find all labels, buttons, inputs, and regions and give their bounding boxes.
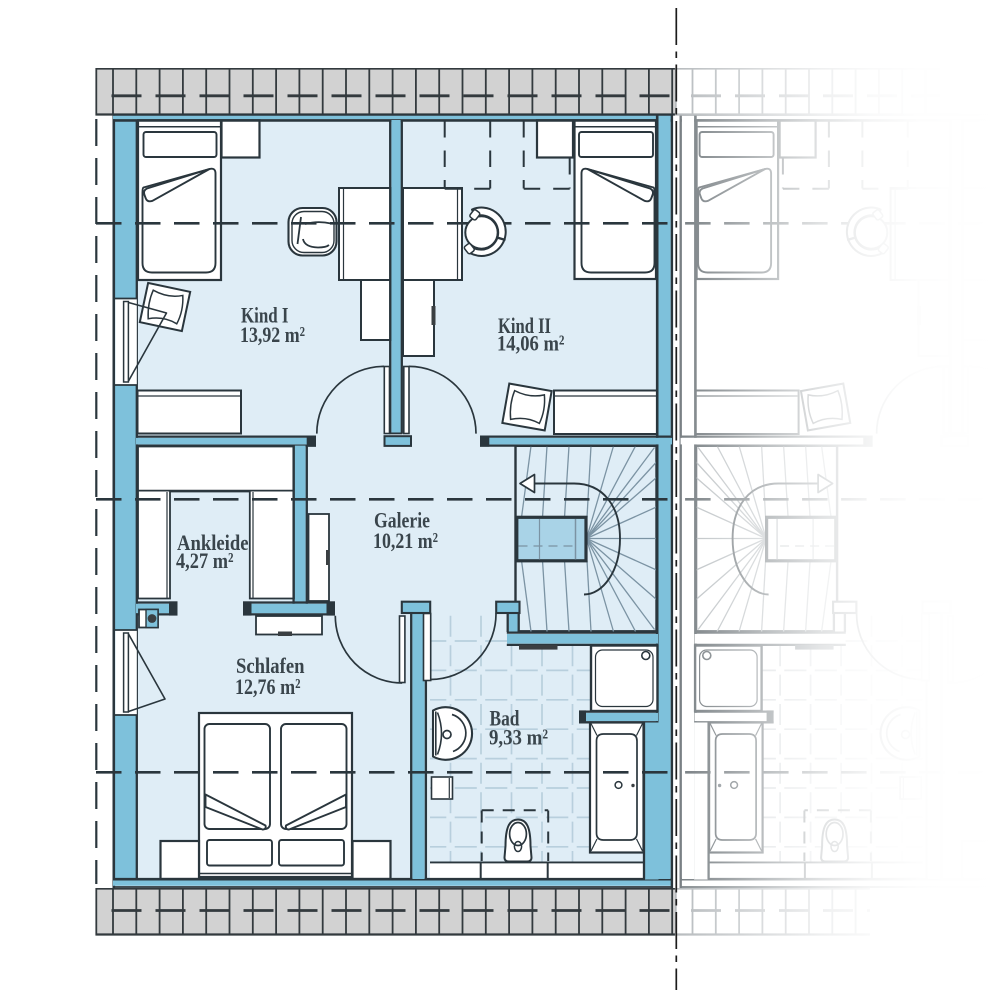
svg-text:10,21 m²: 10,21 m² (373, 528, 438, 553)
svg-text:4,27 m²: 4,27 m² (176, 548, 234, 573)
svg-text:12,76 m²: 12,76 m² (235, 674, 301, 699)
svg-text:13,92 m²: 13,92 m² (240, 322, 305, 347)
svg-text:14,06 m²: 14,06 m² (497, 331, 565, 356)
svg-text:9,33 m²: 9,33 m² (489, 725, 548, 750)
